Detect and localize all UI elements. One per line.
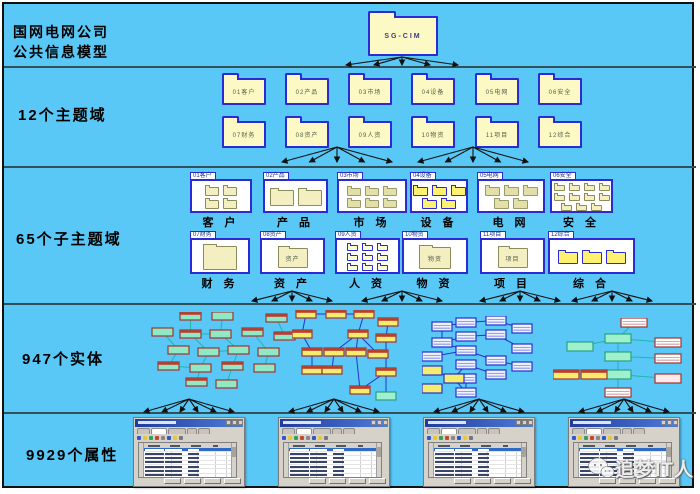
watermark-text: 追梦IT人 bbox=[615, 455, 694, 482]
window-tabs bbox=[572, 428, 646, 435]
mini-folder-icon bbox=[513, 200, 528, 209]
mini-folder-icon bbox=[347, 265, 358, 271]
subdomain-box-3: 03市场市 场 bbox=[337, 172, 407, 213]
window-toolbar bbox=[427, 435, 475, 441]
window-button-icon bbox=[232, 420, 237, 425]
subject-folder-label: 03市场 bbox=[359, 87, 382, 96]
subdomain-caption: 客 户 bbox=[190, 214, 252, 230]
window-tabs bbox=[427, 428, 501, 435]
mini-folder-icon bbox=[422, 200, 437, 209]
mini-folder-icon bbox=[485, 187, 500, 196]
mini-folder-icon bbox=[223, 187, 237, 196]
subdomain-box-body bbox=[337, 179, 407, 213]
window-tab bbox=[187, 428, 197, 434]
mini-folder-icon bbox=[441, 200, 456, 209]
toolbar-icon bbox=[427, 436, 431, 440]
subdomain-box-tab: 01客户 bbox=[190, 172, 216, 180]
window-titlebar bbox=[570, 419, 678, 427]
toolbar-icon bbox=[155, 436, 159, 440]
mini-folder-icon bbox=[347, 188, 361, 196]
subject-folder-3: 03市场 bbox=[348, 78, 392, 105]
window-button-icon bbox=[383, 420, 388, 425]
subdomain-box-tab: 03市场 bbox=[337, 172, 363, 180]
toolbar-icon bbox=[300, 436, 304, 440]
subdomain-box-body bbox=[190, 238, 250, 274]
subject-folder-7: 07财务 bbox=[222, 121, 266, 148]
window-tabs bbox=[137, 428, 211, 435]
window-tab bbox=[477, 428, 487, 434]
dialog-button bbox=[329, 478, 346, 484]
mini-folder-icon bbox=[383, 200, 397, 208]
subdomain-box-7: 07财务财 务 bbox=[190, 231, 250, 274]
mini-folder-icon: 物资 bbox=[419, 247, 451, 269]
mini-folder-icon bbox=[599, 185, 610, 191]
subdomain-box-tab: 05电网 bbox=[477, 172, 503, 180]
window-button-icon bbox=[667, 420, 672, 425]
toolbar-icon bbox=[433, 436, 437, 440]
attribute-window-1 bbox=[133, 417, 245, 487]
mini-folder-icon bbox=[362, 265, 373, 271]
toolbar-icon bbox=[608, 436, 612, 440]
mini-folder-icon bbox=[205, 200, 219, 209]
mini-folder-icon bbox=[582, 252, 602, 264]
mini-folder-icon bbox=[432, 187, 447, 196]
window-tab bbox=[343, 428, 355, 434]
subdomain-caption: 财 务 bbox=[190, 275, 250, 291]
window-button-icon bbox=[377, 420, 382, 425]
mini-folder-icon bbox=[569, 195, 580, 201]
mini-folder-icon bbox=[554, 185, 565, 191]
window-tab bbox=[458, 428, 476, 434]
toolbar-icon bbox=[584, 436, 588, 440]
mini-folder-icon bbox=[362, 255, 373, 261]
toolbar-icon bbox=[590, 436, 594, 440]
toolbar-icon bbox=[451, 436, 455, 440]
toolbar-icon bbox=[167, 436, 171, 440]
subject-folder-5: 05电网 bbox=[475, 78, 519, 105]
attribute-window-3 bbox=[423, 417, 535, 487]
subject-folder-10: 10物资 bbox=[411, 121, 455, 148]
mini-folder-icon bbox=[383, 188, 397, 196]
window-tab bbox=[441, 428, 457, 434]
window-tab bbox=[572, 428, 585, 434]
toolbar-icon bbox=[137, 436, 141, 440]
toolbar-icon bbox=[312, 436, 316, 440]
subject-folder-1: 01客户 bbox=[222, 78, 266, 105]
subdomain-caption: 项 目 bbox=[480, 275, 545, 291]
window-toolbar bbox=[137, 435, 185, 441]
attribute-table bbox=[428, 442, 527, 478]
subdomain-box-8: 08资产资产资 产 bbox=[260, 231, 325, 274]
toolbar-icon bbox=[463, 436, 467, 440]
subdomain-box-tab: 02产品 bbox=[263, 172, 289, 180]
mini-folder-icon bbox=[205, 187, 219, 196]
scrollbar bbox=[231, 443, 236, 477]
root-folder-label: SG-CIM bbox=[384, 33, 421, 40]
band-label-subdomains: 65个子主题域 bbox=[16, 228, 122, 249]
window-buttons bbox=[306, 478, 386, 484]
dialog-button bbox=[454, 478, 471, 484]
subdomain-box-tab: 08资产 bbox=[260, 231, 286, 239]
toolbar-icon bbox=[306, 436, 310, 440]
subdomain-box-body bbox=[550, 179, 613, 213]
toolbar-icon bbox=[318, 436, 322, 440]
subject-folder-9: 09人资 bbox=[348, 121, 392, 148]
window-button-icon bbox=[522, 420, 527, 425]
subdomain-box-tab: 12综合 bbox=[548, 231, 574, 239]
mini-folder-icon bbox=[270, 190, 294, 206]
toolbar-icon bbox=[457, 436, 461, 440]
dialog-button bbox=[494, 478, 511, 484]
window-tab bbox=[198, 428, 210, 434]
subject-folder-label: 06安全 bbox=[549, 87, 572, 96]
mini-folder-icon bbox=[504, 187, 519, 196]
window-tab bbox=[427, 428, 440, 434]
dialog-button bbox=[474, 478, 491, 484]
mini-folder-icon bbox=[203, 246, 237, 270]
entity-cluster-2 bbox=[292, 310, 400, 402]
scrollbar bbox=[376, 443, 381, 477]
band-divider-4 bbox=[4, 412, 696, 414]
subdomain-box-body bbox=[335, 238, 400, 274]
subject-folder-label: 11项目 bbox=[486, 130, 508, 139]
toolbar-icon bbox=[439, 436, 443, 440]
subdomain-box-body: 物资 bbox=[402, 238, 468, 274]
mini-folder-icon bbox=[558, 252, 578, 264]
window-tab bbox=[296, 428, 312, 434]
mini-folder-icon bbox=[377, 265, 388, 271]
mini-folder-icon: 项目 bbox=[498, 248, 528, 268]
subdomain-caption: 电 网 bbox=[477, 214, 545, 230]
toolbar-icon bbox=[578, 436, 582, 440]
toolbar-icon bbox=[161, 436, 165, 440]
dialog-button bbox=[514, 478, 531, 484]
band-label-attributes: 9929个属性 bbox=[26, 444, 118, 465]
mini-folder-icon bbox=[606, 252, 626, 264]
window-button-icon bbox=[226, 420, 231, 425]
window-button-icon bbox=[528, 420, 533, 425]
dialog-button bbox=[369, 478, 386, 484]
subject-folder-11: 11项目 bbox=[475, 121, 519, 148]
mini-folder-icon bbox=[576, 205, 587, 211]
window-titlebar bbox=[425, 419, 533, 427]
mini-folder-icon bbox=[223, 200, 237, 209]
subdomain-caption: 人 资 bbox=[335, 275, 400, 291]
mini-folder-icon bbox=[591, 205, 602, 211]
mini-folder-icon bbox=[347, 245, 358, 251]
window-tab bbox=[151, 428, 167, 434]
wechat-icon bbox=[587, 457, 615, 481]
subdomain-box-tab: 06安全 bbox=[550, 172, 576, 180]
subject-folder-label: 10物资 bbox=[422, 130, 445, 139]
window-tabs bbox=[282, 428, 356, 435]
attribute-window-2 bbox=[278, 417, 390, 487]
dialog-button bbox=[309, 478, 326, 484]
toolbar-icon bbox=[294, 436, 298, 440]
subdomain-caption: 产 品 bbox=[263, 214, 328, 230]
subdomain-box-tab: 07财务 bbox=[190, 231, 216, 239]
window-button-icon bbox=[371, 420, 376, 425]
mini-folder-icon bbox=[451, 187, 466, 196]
subject-folder-label: 08资产 bbox=[296, 130, 319, 139]
mini-folder-icon bbox=[298, 190, 322, 206]
entity-cluster-3 bbox=[422, 316, 540, 402]
toolbar-icon bbox=[173, 436, 177, 440]
mini-folder-icon bbox=[523, 187, 538, 196]
root-folder: SG-CIM bbox=[368, 16, 438, 56]
window-titlebar bbox=[135, 419, 243, 427]
subdomain-box-body bbox=[477, 179, 545, 213]
window-button-icon bbox=[238, 420, 243, 425]
mini-folder-icon bbox=[569, 185, 580, 191]
entity-cluster-4 bbox=[553, 318, 698, 406]
model-title-line1: 国网电网公司 bbox=[13, 22, 109, 42]
mini-folder-label: 项目 bbox=[505, 254, 519, 263]
mini-folder-icon bbox=[413, 187, 428, 196]
subject-folder-label: 07财务 bbox=[233, 130, 256, 139]
subdomain-box-body bbox=[410, 179, 468, 213]
dialog-button bbox=[349, 478, 366, 484]
window-tab bbox=[313, 428, 331, 434]
mini-folder-icon bbox=[347, 200, 361, 208]
window-button-icon bbox=[661, 420, 666, 425]
dialog-button bbox=[224, 478, 241, 484]
subject-folder-12: 12综合 bbox=[538, 121, 582, 148]
watermark: 追梦IT人 bbox=[587, 455, 694, 482]
toolbar-icon bbox=[602, 436, 606, 440]
subject-folder-label: 12综合 bbox=[549, 130, 572, 139]
toolbar-icon bbox=[179, 436, 183, 440]
toolbar-icon bbox=[469, 436, 473, 440]
mini-folder-icon: 资产 bbox=[278, 248, 308, 268]
subdomain-box-11: 11项目项目项 目 bbox=[480, 231, 545, 274]
toolbar-icon bbox=[149, 436, 153, 440]
mini-folder-icon bbox=[584, 185, 595, 191]
window-tab bbox=[622, 428, 632, 434]
mini-folder-icon bbox=[599, 195, 610, 201]
subdomain-box-body bbox=[263, 179, 328, 213]
window-toolbar bbox=[572, 435, 620, 441]
scrollbar bbox=[521, 443, 526, 477]
toolbar-icon bbox=[282, 436, 286, 440]
subdomain-caption: 物 资 bbox=[402, 275, 468, 291]
subdomain-caption: 综 合 bbox=[548, 275, 635, 291]
band-divider-2 bbox=[4, 166, 696, 168]
subdomain-box-9: 09人资人 资 bbox=[335, 231, 400, 274]
toolbar-icon bbox=[572, 436, 576, 440]
window-tab bbox=[282, 428, 295, 434]
subdomain-box-2: 02产品产 品 bbox=[263, 172, 328, 213]
toolbar-icon bbox=[143, 436, 147, 440]
band-divider-1 bbox=[4, 66, 696, 68]
subdomain-box-5: 05电网电 网 bbox=[477, 172, 545, 213]
subject-folder-label: 09人资 bbox=[359, 130, 382, 139]
window-tab bbox=[488, 428, 500, 434]
subdomain-caption: 市 场 bbox=[337, 214, 407, 230]
subject-folder-label: 02产品 bbox=[296, 87, 319, 96]
subdomain-box-tab: 09人资 bbox=[335, 231, 361, 239]
dialog-button bbox=[204, 478, 221, 484]
mini-folder-icon bbox=[494, 200, 509, 209]
window-titlebar bbox=[280, 419, 388, 427]
subject-folder-label: 05电网 bbox=[486, 87, 509, 96]
window-buttons bbox=[451, 478, 531, 484]
mini-folder-icon bbox=[584, 195, 595, 201]
window-tab bbox=[633, 428, 645, 434]
subdomain-caption: 设 备 bbox=[410, 214, 468, 230]
mini-folder-label: 物资 bbox=[428, 254, 442, 263]
mini-folder-label: 资产 bbox=[285, 254, 299, 263]
window-button-icon bbox=[673, 420, 678, 425]
diagram-canvas: 国网电网公司 公共信息模型 12个主题域 65个子主题域 947个实体 9929… bbox=[0, 0, 700, 494]
subdomain-box-6: 06安全安 全 bbox=[550, 172, 613, 213]
mini-folder-icon bbox=[362, 245, 373, 251]
window-button-icon bbox=[516, 420, 521, 425]
mini-folder-icon bbox=[365, 188, 379, 196]
mini-folder-icon bbox=[377, 255, 388, 261]
window-buttons bbox=[161, 478, 241, 484]
toolbar-icon bbox=[288, 436, 292, 440]
dialog-button bbox=[164, 478, 181, 484]
subdomain-box-tab: 10物资 bbox=[402, 231, 428, 239]
attribute-table bbox=[138, 442, 237, 478]
entity-cluster-1 bbox=[150, 312, 300, 402]
window-tab bbox=[168, 428, 186, 434]
mini-folder-icon bbox=[365, 200, 379, 208]
mini-folder-icon bbox=[554, 195, 565, 201]
dialog-button bbox=[184, 478, 201, 484]
toolbar-icon bbox=[324, 436, 328, 440]
subdomain-box-4: 04设备设 备 bbox=[410, 172, 468, 213]
band-divider-3 bbox=[4, 303, 696, 305]
subject-folder-4: 04设备 bbox=[411, 78, 455, 105]
subject-folder-label: 04设备 bbox=[422, 87, 445, 96]
subject-folder-8: 08资产 bbox=[285, 121, 329, 148]
window-toolbar bbox=[282, 435, 330, 441]
toolbar-icon bbox=[596, 436, 600, 440]
subdomain-box-10: 10物资物资物 资 bbox=[402, 231, 468, 274]
toolbar-icon bbox=[445, 436, 449, 440]
window-tab bbox=[137, 428, 150, 434]
model-title: 国网电网公司 公共信息模型 bbox=[13, 22, 109, 63]
attribute-table bbox=[283, 442, 382, 478]
subdomain-caption: 安 全 bbox=[550, 214, 613, 230]
subdomain-caption: 资 产 bbox=[260, 275, 325, 291]
band-label-entities: 947个实体 bbox=[22, 348, 104, 369]
subdomain-box-body bbox=[190, 179, 252, 213]
subdomain-box-body bbox=[548, 238, 635, 274]
subdomain-box-12: 12综合综 合 bbox=[548, 231, 635, 274]
subject-folder-6: 06安全 bbox=[538, 78, 582, 105]
subject-folder-2: 02产品 bbox=[285, 78, 329, 105]
window-tab bbox=[332, 428, 342, 434]
mini-folder-icon bbox=[561, 205, 572, 211]
subdomain-box-1: 01客户客 户 bbox=[190, 172, 252, 213]
window-tab bbox=[586, 428, 602, 434]
toolbar-icon bbox=[614, 436, 618, 440]
model-title-line2: 公共信息模型 bbox=[13, 42, 109, 62]
subdomain-box-body: 项目 bbox=[480, 238, 545, 274]
subject-folder-label: 01客户 bbox=[233, 87, 256, 96]
subdomain-box-body: 资产 bbox=[260, 238, 325, 274]
mini-folder-icon bbox=[377, 245, 388, 251]
subdomain-box-tab: 11项目 bbox=[480, 231, 506, 239]
subdomain-box-tab: 04设备 bbox=[410, 172, 436, 180]
window-tab bbox=[603, 428, 621, 434]
band-label-subjects: 12个主题域 bbox=[18, 104, 107, 125]
mini-folder-icon bbox=[347, 255, 358, 261]
